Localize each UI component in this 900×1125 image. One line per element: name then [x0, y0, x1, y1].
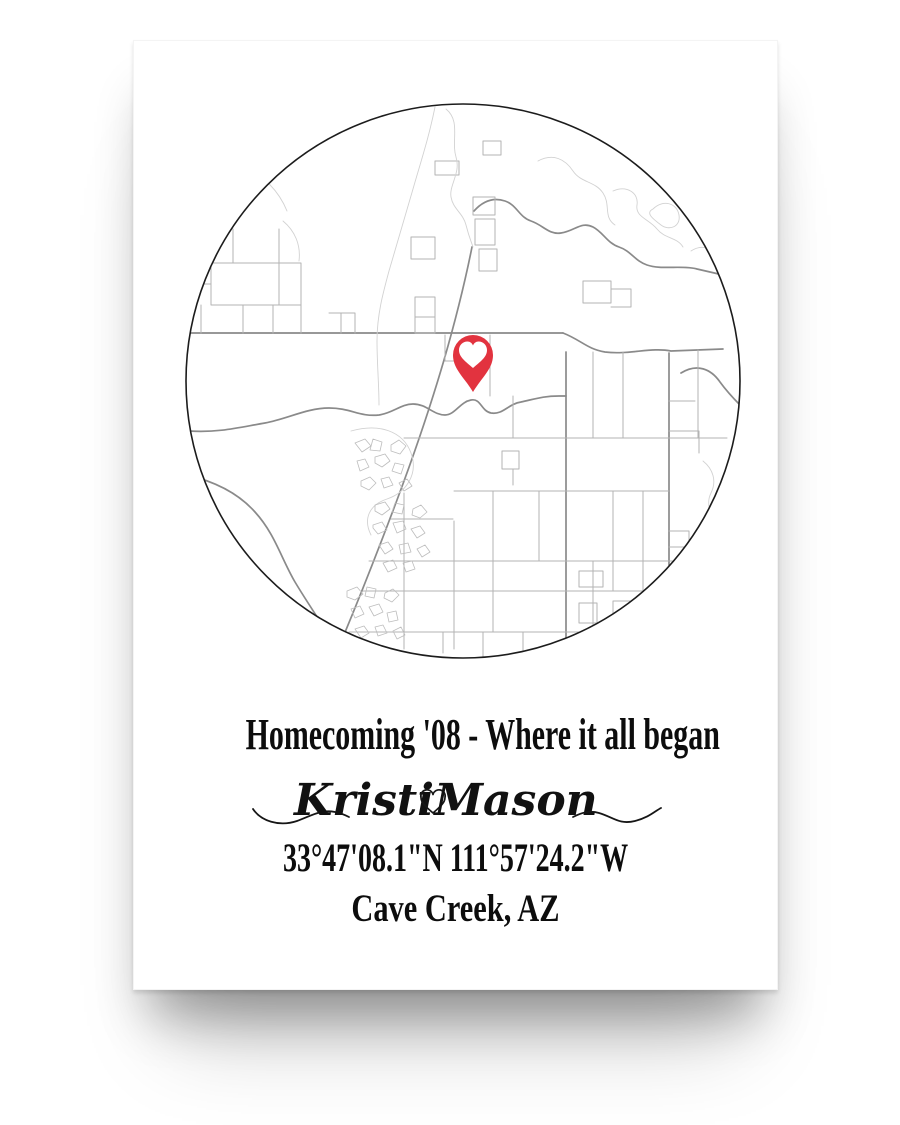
first-name: Kristi: [292, 775, 434, 826]
mockup-background: Homecoming '08 - Where it all began Kris…: [0, 0, 900, 1125]
poster-title: Homecoming '08 - Where it all began: [134, 713, 777, 757]
location-city: Cave Creek, AZ: [134, 889, 777, 928]
coordinates-text: 33°47'08.1"N 111°57'24.2"W: [283, 838, 628, 878]
map-circle-outline: [186, 104, 740, 658]
map-poster: Homecoming '08 - Where it all began Kris…: [133, 40, 778, 990]
location-pin: [453, 335, 493, 392]
location-city-text: Cave Creek, AZ: [351, 889, 559, 928]
second-name: Mason: [432, 775, 597, 826]
poster-title-text: Homecoming '08 - Where it all began: [246, 713, 720, 757]
street-map-circle: [183, 101, 743, 661]
coordinates: 33°47'08.1"N 111°57'24.2"W: [134, 838, 777, 878]
